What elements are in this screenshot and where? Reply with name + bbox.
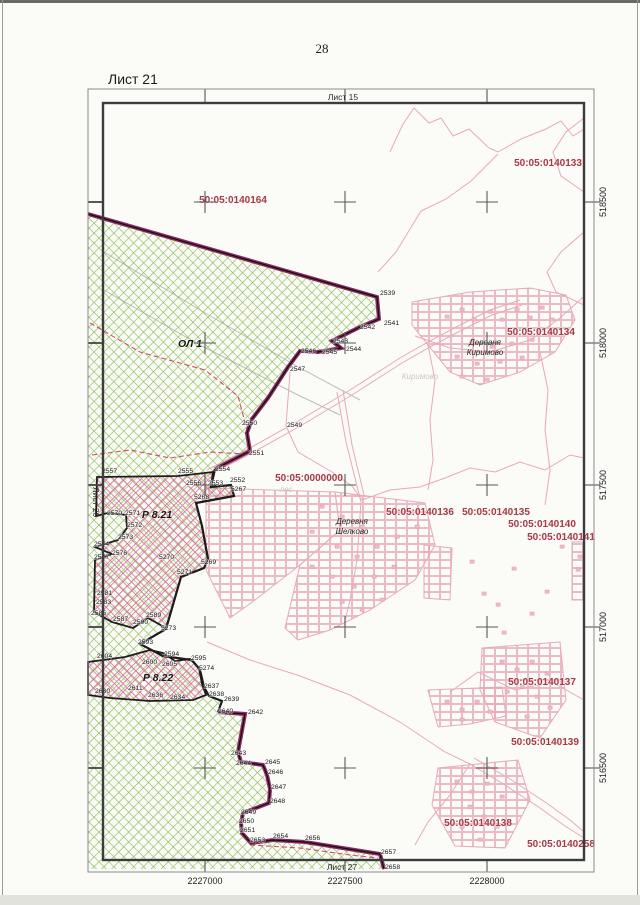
cadastral-map: 28 Лист 21 Киримоволес 25392541254225432… bbox=[0, 0, 640, 905]
point-number: 5267 bbox=[231, 486, 246, 493]
cadastral-number: 50:05:0140136 bbox=[386, 507, 454, 518]
point-number: 2574 bbox=[94, 541, 109, 548]
page-number: 28 bbox=[316, 41, 329, 56]
building bbox=[475, 700, 479, 703]
x-coordinate-label: 2227000 bbox=[187, 876, 222, 886]
point-number: 2554 bbox=[215, 466, 230, 473]
cadastral-number: 50:05:0140134 bbox=[507, 327, 575, 338]
point-number: 2638 bbox=[209, 691, 224, 698]
building bbox=[485, 782, 489, 785]
y-coordinate-label: 517500 bbox=[598, 470, 608, 500]
building bbox=[530, 338, 534, 341]
parcel-block bbox=[432, 760, 530, 848]
building bbox=[470, 790, 474, 793]
building bbox=[576, 568, 580, 571]
point-number: 2648 bbox=[270, 798, 285, 805]
topo-line bbox=[378, 154, 498, 272]
point-number: 2600 bbox=[142, 659, 157, 666]
building bbox=[520, 356, 524, 359]
topo-line bbox=[428, 345, 435, 490]
topo-line bbox=[362, 455, 584, 500]
point-number: 2651 bbox=[240, 827, 255, 834]
point-number: 2611 bbox=[128, 685, 143, 692]
point-number: 2637 bbox=[204, 683, 219, 690]
point-number: 2546 bbox=[301, 348, 316, 355]
cadastral-number: 50:05:0140164 bbox=[199, 195, 267, 206]
grid-cross bbox=[476, 616, 498, 638]
point-number: 2573 bbox=[118, 534, 133, 541]
point-number: 5274 bbox=[199, 665, 214, 672]
building bbox=[550, 318, 554, 321]
building bbox=[395, 535, 399, 538]
point-number: 2649 bbox=[241, 809, 256, 816]
building bbox=[485, 378, 489, 381]
building bbox=[375, 545, 379, 548]
point-number: 2551 bbox=[249, 450, 264, 457]
point-number: 2653 bbox=[250, 837, 265, 844]
point-number: 2593 bbox=[138, 639, 153, 646]
grid-cross bbox=[194, 616, 216, 638]
building bbox=[530, 660, 534, 663]
point-number: 2553 bbox=[208, 480, 223, 487]
topo-line bbox=[390, 108, 584, 152]
point-number: 2604 bbox=[97, 653, 112, 660]
point-number: 2657 bbox=[381, 849, 396, 856]
point-number: 2549 bbox=[287, 422, 302, 429]
cadastral-number: 50:05:0000000 bbox=[275, 473, 343, 484]
building bbox=[545, 590, 549, 593]
zone-name: Р 8.21 bbox=[142, 509, 173, 521]
point-number: 2605 bbox=[162, 661, 177, 668]
point-number: 2570 bbox=[107, 510, 122, 517]
building bbox=[500, 318, 504, 321]
village-name: Шелково bbox=[336, 527, 369, 536]
building bbox=[502, 631, 506, 634]
point-number: 2594 bbox=[164, 651, 179, 658]
point-number: 2587 bbox=[113, 616, 128, 623]
building bbox=[498, 360, 502, 363]
building bbox=[380, 598, 384, 601]
point-number: 2642 bbox=[248, 709, 263, 716]
point-number: 2656 bbox=[305, 835, 320, 842]
grid-cross bbox=[334, 191, 356, 213]
building bbox=[392, 565, 396, 568]
building bbox=[460, 718, 464, 721]
building bbox=[578, 555, 582, 558]
cadastral-number: 50:05:0140140 bbox=[508, 519, 576, 530]
building bbox=[310, 530, 314, 533]
building bbox=[460, 308, 464, 311]
point-number: 2555 bbox=[178, 468, 193, 475]
point-number: 2645 bbox=[265, 759, 280, 766]
point-number: 2550 bbox=[242, 420, 257, 427]
point-number: 5271 bbox=[177, 569, 192, 576]
building bbox=[482, 592, 486, 595]
building bbox=[330, 575, 334, 578]
point-number: 2646 bbox=[268, 769, 283, 776]
building bbox=[515, 308, 519, 311]
building bbox=[460, 708, 464, 711]
point-number: 5269 bbox=[201, 559, 216, 566]
building bbox=[512, 567, 516, 570]
building bbox=[310, 565, 314, 568]
building bbox=[548, 706, 552, 709]
cadastral-number: 50:05:0140139 bbox=[511, 737, 579, 748]
point-number: 2595 bbox=[191, 655, 206, 662]
point-number: 2589 bbox=[146, 612, 161, 619]
building bbox=[355, 555, 359, 558]
building bbox=[545, 672, 549, 675]
village-name: Деревня bbox=[335, 517, 369, 526]
point-number: 2576 bbox=[112, 550, 127, 557]
building bbox=[475, 362, 479, 365]
building bbox=[455, 355, 459, 358]
point-number: 2543 bbox=[333, 338, 348, 345]
building bbox=[445, 700, 449, 703]
building bbox=[488, 710, 492, 713]
x-coordinate-label: 2227500 bbox=[327, 876, 362, 886]
building bbox=[470, 560, 474, 563]
parcel-block bbox=[424, 545, 452, 600]
ghost-label: лес bbox=[279, 485, 293, 494]
building bbox=[500, 795, 504, 798]
building bbox=[340, 600, 344, 603]
village-name: Киримово bbox=[467, 348, 504, 357]
y-coordinate-label: 517000 bbox=[598, 612, 608, 642]
building bbox=[560, 545, 564, 548]
topo-line bbox=[540, 352, 550, 505]
y-coordinate-label: 518500 bbox=[598, 187, 608, 217]
point-number: 2658 bbox=[385, 864, 400, 871]
point-number: 2640 bbox=[218, 708, 233, 715]
point-number: 2571 bbox=[125, 510, 140, 517]
building bbox=[372, 575, 376, 578]
point-number: 2577 bbox=[94, 554, 109, 561]
building bbox=[455, 780, 459, 783]
building bbox=[505, 690, 509, 693]
building bbox=[460, 375, 464, 378]
building bbox=[528, 316, 532, 319]
point-number: 2636 bbox=[148, 692, 163, 699]
point-number: 2654 bbox=[273, 833, 288, 840]
grid-cross bbox=[334, 757, 356, 779]
building bbox=[335, 545, 339, 548]
point-number: 2634 bbox=[170, 694, 185, 701]
sheet-title: Лист 21 bbox=[108, 71, 158, 87]
building bbox=[525, 715, 529, 718]
point-number: 2541 bbox=[384, 320, 399, 327]
building bbox=[496, 603, 500, 606]
point-number: 2544 bbox=[346, 346, 361, 353]
point-number: 2590 bbox=[133, 619, 148, 626]
building bbox=[515, 668, 519, 671]
building bbox=[478, 838, 482, 841]
point-number: 2542 bbox=[360, 324, 375, 331]
point-number: 5273 bbox=[161, 625, 176, 632]
adjacent-sheet-left: Лист 20 bbox=[91, 487, 101, 518]
ghost-label: Киримово bbox=[402, 372, 439, 381]
building bbox=[360, 608, 364, 611]
point-number: 2647 bbox=[271, 784, 286, 791]
cadastral-number: 50:05:0140135 bbox=[462, 507, 530, 518]
point-number: 2547 bbox=[290, 366, 305, 373]
adjacent-sheet-top: Лист 15 bbox=[328, 92, 359, 102]
point-number: 2572 bbox=[127, 522, 142, 529]
point-number: 2552 bbox=[230, 477, 245, 484]
scanned-map-page: 28 Лист 21 Киримоволес 25392541254225432… bbox=[0, 0, 640, 905]
building bbox=[500, 660, 504, 663]
point-number: 2643 bbox=[231, 750, 246, 757]
y-coordinate-label: 518000 bbox=[598, 328, 608, 358]
building bbox=[320, 505, 324, 508]
adjacent-sheet-bottom: Лист 27 bbox=[327, 862, 358, 872]
point-number: 2650 bbox=[239, 818, 254, 825]
grid-cross bbox=[476, 474, 498, 496]
point-number: 2545 bbox=[322, 349, 337, 356]
building bbox=[415, 525, 419, 528]
zone-name: Р 8.22 bbox=[143, 672, 174, 684]
zone-name: ОЛ 1 bbox=[178, 338, 202, 350]
point-number: 5268 bbox=[194, 494, 209, 501]
building bbox=[535, 695, 539, 698]
topographic-pink-lines bbox=[207, 108, 584, 845]
building bbox=[445, 315, 449, 318]
point-number: 2539 bbox=[380, 290, 395, 297]
point-number: 5270 bbox=[159, 554, 174, 561]
point-number: 2556 bbox=[186, 480, 201, 487]
topo-line bbox=[553, 118, 584, 192]
building bbox=[510, 342, 514, 345]
cadastral-number: 50:05:0140137 bbox=[508, 677, 576, 688]
building bbox=[488, 310, 492, 313]
building bbox=[468, 805, 472, 808]
point-number: 2581 bbox=[97, 590, 112, 597]
y-coordinate-label: 516500 bbox=[598, 753, 608, 783]
building bbox=[352, 585, 356, 588]
grid-cross bbox=[476, 191, 498, 213]
point-number: 2557 bbox=[102, 468, 117, 475]
point-number: 2644 bbox=[236, 760, 251, 767]
point-number: 2639 bbox=[224, 696, 239, 703]
cadastral-number: 50:05:0140133 bbox=[514, 158, 582, 169]
building bbox=[540, 306, 544, 309]
x-coordinate-label: 2228000 bbox=[469, 876, 504, 886]
building bbox=[530, 612, 534, 615]
cadastral-number: 50:05:0140138 bbox=[444, 818, 512, 829]
building bbox=[472, 318, 476, 321]
